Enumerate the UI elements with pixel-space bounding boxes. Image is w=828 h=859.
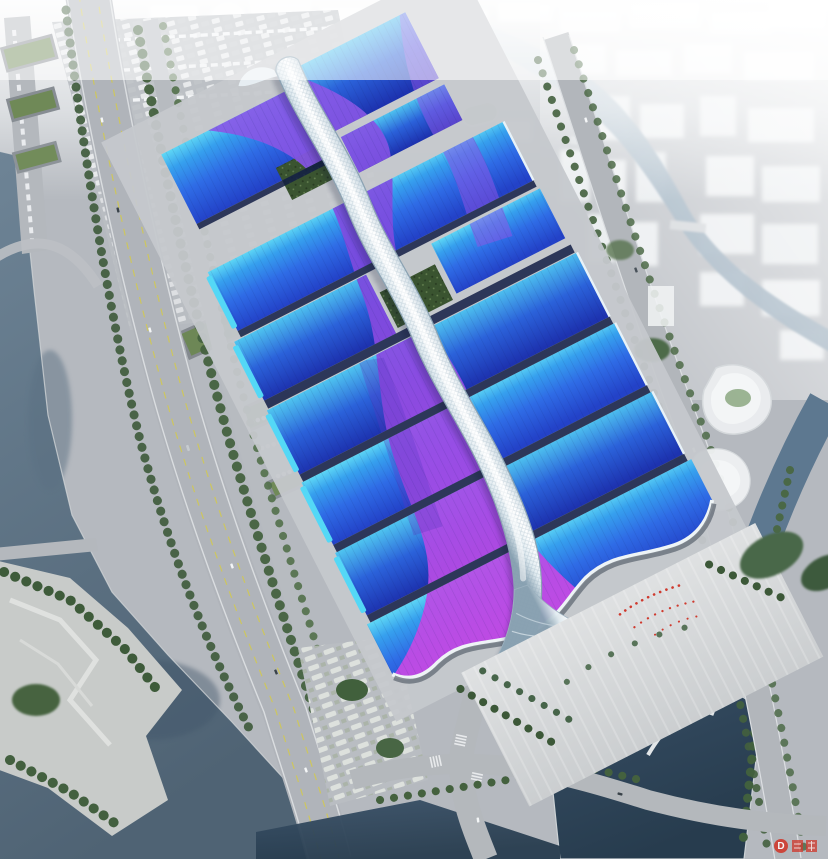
- tree-cluster: [336, 679, 368, 701]
- aerial-render: D: [0, 0, 828, 859]
- atmospheric-haze: [0, 0, 828, 80]
- watermark-logo-letter: D: [777, 841, 784, 852]
- watermark: D: [774, 839, 817, 853]
- tree-cluster: [376, 738, 404, 758]
- tree-cluster: [606, 240, 634, 260]
- tree-cluster: [12, 684, 60, 716]
- courtyard-lawn: [725, 389, 751, 407]
